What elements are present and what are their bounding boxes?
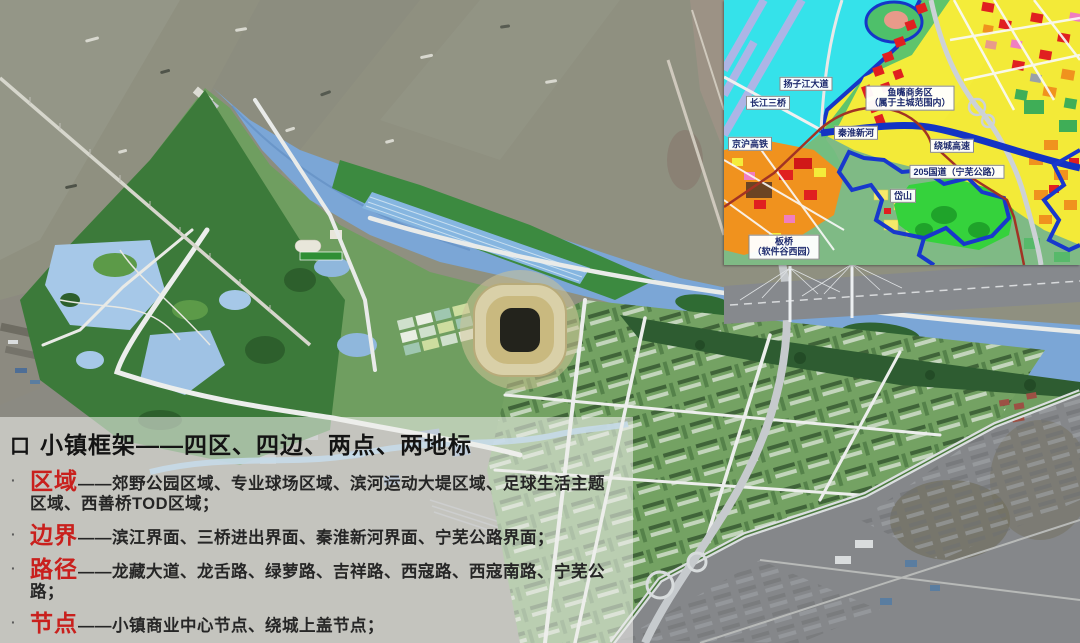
label-jinghu-hsr: 京沪高铁	[728, 137, 772, 151]
item-bullet: ·	[11, 560, 16, 577]
label-banqiao-line1: 板桥	[752, 237, 815, 247]
item-keyword: 区域	[30, 468, 78, 494]
title-square-bullet: 口	[10, 436, 31, 458]
label-banqiao: 板桥 （软件谷西园）	[748, 235, 819, 260]
item-bullet: ·	[11, 472, 16, 489]
label-yuzui-business-district: 鱼嘴商务区 （属于主城范围内）	[865, 86, 954, 111]
framework-item-node: · 节点——小镇商业中心节点、绕城上盖节点；	[0, 610, 633, 637]
label-yuzui-line2: （属于主城范围内）	[869, 98, 950, 108]
framework-item-region: · 区域——郊野公园区域、专业球场区域、滨河运动大堤区域、足球生活主题区域、西善…	[0, 468, 633, 515]
label-daishan: 岱山	[890, 189, 916, 203]
item-keyword: 路径	[30, 556, 78, 582]
label-yangzijiang-avenue: 扬子江大道	[779, 77, 832, 91]
framework-item-path: · 路径——龙藏大道、龙舌路、绿萝路、吉祥路、西寇路、西寇南路、宁芜公路；	[0, 556, 633, 603]
item-keyword: 边界	[30, 522, 78, 548]
label-banqiao-line2: （软件谷西园）	[752, 247, 815, 257]
item-bullet: ·	[11, 614, 16, 631]
item-bullet: ·	[11, 526, 16, 543]
inset-map-art	[724, 0, 1080, 265]
label-changjiang-third-bridge: 长江三桥	[746, 96, 790, 110]
item-text: ——龙藏大道、龙舌路、绿萝路、吉祥路、西寇路、西寇南路、宁芜公路；	[30, 563, 605, 601]
stadium-icon	[460, 270, 580, 390]
framework-item-boundary: · 边界——滨江界面、三桥进出界面、秦淮新河界面、宁芜公路界面；	[0, 522, 633, 549]
slide-canvas: 扬子江大道 长江三桥 鱼嘴商务区 （属于主城范围内） 京沪高铁 秦淮新河 绕城高…	[0, 0, 1080, 643]
item-text: ——小镇商业中心节点、绕城上盖节点；	[78, 617, 384, 635]
panel-title: 口小镇框架——四区、四边、两点、两地标	[10, 426, 633, 460]
item-text: ——滨江界面、三桥进出界面、秦淮新河界面、宁芜公路界面；	[78, 529, 554, 547]
framework-info-panel: 口小镇框架——四区、四边、两点、两地标 · 区域——郊野公园区域、专业球场区域、…	[0, 417, 633, 643]
item-text: ——郊野公园区域、专业球场区域、滨河运动大堤区域、足球生活主题区域、西善桥TOD…	[30, 475, 605, 513]
panel-title-text: 小镇框架——四区、四边、两点、两地标	[40, 432, 472, 458]
label-yuzui-line1: 鱼嘴商务区	[869, 88, 950, 98]
label-ring-expressway: 绕城高速	[930, 139, 974, 153]
item-keyword: 节点	[30, 610, 78, 636]
label-qinhuai-new-river: 秦淮新河	[834, 126, 878, 140]
inset-landuse-map: 扬子江大道 长江三桥 鱼嘴商务区 （属于主城范围内） 京沪高铁 秦淮新河 绕城高…	[724, 0, 1080, 265]
label-g205-ningwu: 205国道（宁芜公路）	[909, 165, 1004, 179]
